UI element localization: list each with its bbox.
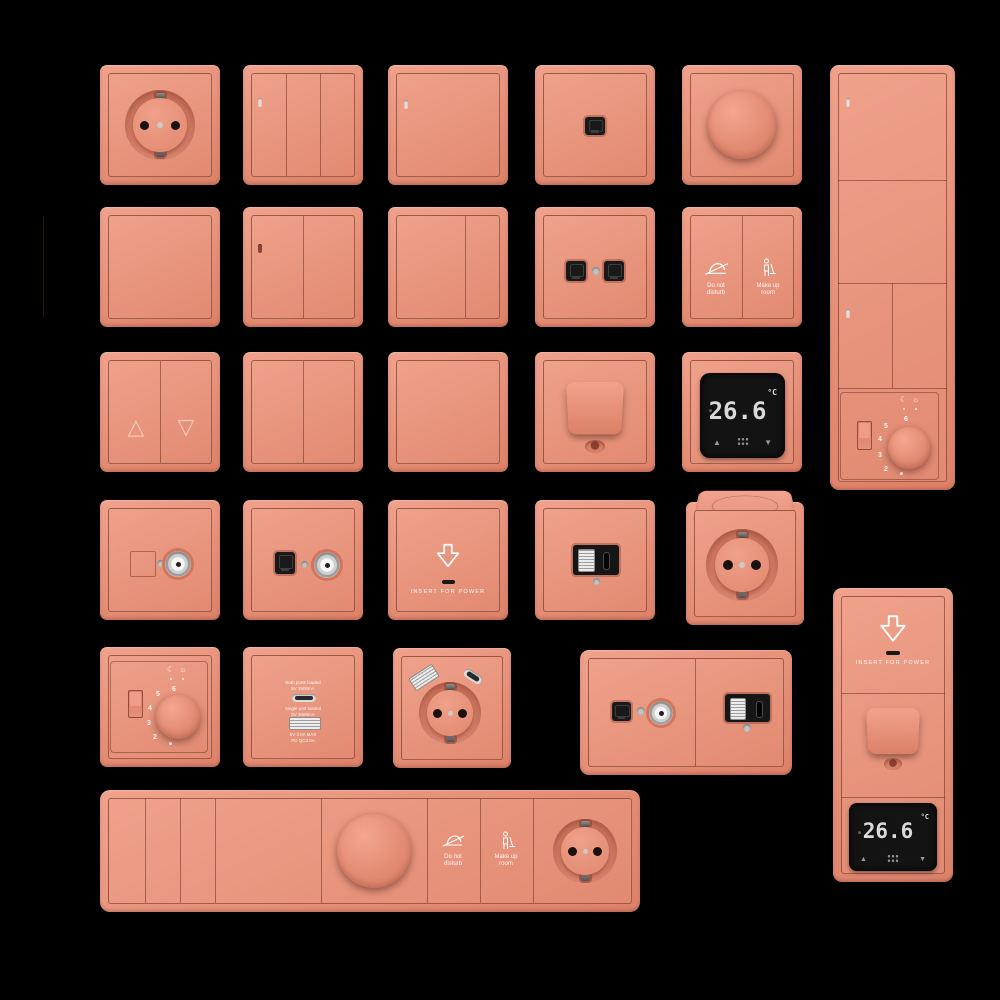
status-dot	[592, 267, 600, 275]
temp-down-button[interactable]: ▼	[919, 856, 926, 863]
dial-number: 3	[147, 720, 151, 727]
data-outlet-single	[535, 65, 655, 185]
center-screw	[739, 562, 745, 568]
earth-clip-icon	[446, 736, 455, 742]
usb-c-port[interactable]	[756, 701, 763, 718]
usb-outlet	[535, 500, 655, 620]
multi-panel-bottom: INSERT FOR POWER 26.6 °C ▲ ▼	[833, 588, 953, 882]
earth-clip-icon	[738, 592, 747, 598]
usb-charger-label-mid: Single port loaded5V 3000mA	[253, 706, 353, 717]
rotary-dimmer	[682, 65, 802, 185]
led-indicator	[258, 98, 262, 107]
data-port[interactable]	[566, 261, 586, 281]
socket-face[interactable]	[133, 98, 187, 152]
marker-dot	[903, 408, 905, 410]
thermostat-knob[interactable]	[888, 427, 930, 469]
divider	[215, 799, 216, 903]
insert-card-arrow-icon	[876, 614, 910, 644]
temp-up-button[interactable]: ▲	[860, 856, 867, 863]
usb-c-port[interactable]	[292, 694, 316, 702]
socket-recess[interactable]	[553, 819, 617, 883]
toggle-lever[interactable]	[866, 708, 920, 754]
blinds-down-icon: ▽	[170, 414, 202, 440]
socket-face[interactable]	[715, 538, 769, 592]
dial-number: 2	[153, 734, 157, 741]
toggle-lever-switch	[535, 352, 655, 472]
make-up-room-label: Make uproom	[480, 854, 532, 868]
thermostat-knob[interactable]	[156, 695, 200, 739]
led-indicator	[404, 100, 408, 109]
dial-number: 6	[904, 416, 908, 423]
lever-pivot	[884, 758, 902, 770]
rocker-area[interactable]	[396, 360, 500, 464]
divider	[838, 180, 947, 181]
dial-number: 3	[878, 452, 882, 459]
insert-card-arrow-icon	[433, 542, 463, 570]
switch-3-gang	[388, 207, 508, 327]
pin-hole	[723, 560, 733, 570]
make-up-room-label: Make uproom	[744, 283, 792, 297]
blinds-switch: △ ▽	[100, 352, 220, 472]
earth-clip-icon	[581, 875, 590, 881]
socket-recess[interactable]	[419, 682, 481, 744]
temperature-unit: °C	[921, 813, 929, 821]
dial-number: 6	[172, 686, 176, 693]
coax-connector[interactable]	[649, 701, 673, 725]
usb-c-port[interactable]	[603, 552, 610, 570]
divider	[841, 693, 945, 694]
temp-up-button[interactable]: ▲	[713, 438, 721, 447]
plate-frame	[251, 508, 355, 612]
card-slot[interactable]	[442, 580, 455, 584]
center-screw	[448, 711, 453, 716]
switch-2-gang	[243, 352, 363, 472]
make-up-room-icon	[499, 830, 515, 852]
divider	[427, 799, 428, 903]
mode-slider[interactable]	[857, 421, 872, 450]
mode-slider[interactable]	[128, 690, 143, 718]
usb-charger-label-top: Both ports loaded5V 1500mA	[253, 680, 353, 691]
center-screw	[157, 122, 163, 128]
rocker-area[interactable]	[108, 215, 212, 319]
usb-a-port[interactable]	[289, 717, 321, 730]
switch-1-gang-plain	[100, 207, 220, 327]
dimmer-knob[interactable]	[337, 814, 411, 888]
schuko-socket	[100, 65, 220, 185]
divider	[838, 388, 947, 389]
divider	[742, 216, 743, 318]
do-not-disturb-label: Do notdisturb	[692, 283, 740, 297]
divider	[533, 799, 534, 903]
temperature-value: 26.6	[700, 397, 775, 425]
status-dot	[743, 724, 751, 732]
sun-icon: ☼	[912, 395, 919, 404]
marker-dot	[182, 678, 184, 680]
switch-1-gang	[388, 352, 508, 472]
multi-panel-top: ☾ ☼ 6 5 4 3 2	[830, 65, 955, 490]
switch-1-gang	[388, 65, 508, 185]
divider	[145, 799, 146, 903]
thermostat-screen[interactable]: 26.6 °C ▲ ▼	[849, 803, 937, 871]
thermostat-dial: ☾ ☼ 6 5 4 3 2	[100, 647, 220, 767]
insert-for-power-label: INSERT FOR POWER	[394, 589, 502, 595]
menu-dots-icon[interactable]	[887, 854, 899, 863]
pin-hole	[458, 709, 467, 718]
temp-down-button[interactable]: ▼	[764, 438, 772, 447]
toggle-lever[interactable]	[566, 382, 624, 434]
center-screw	[583, 849, 588, 854]
coax-connector[interactable]	[314, 552, 340, 578]
sun-icon: ☼	[179, 665, 186, 674]
product-collage: ☾ ☼ 6 5 4 3 2	[0, 0, 1000, 1000]
blinds-up-icon: △	[120, 414, 152, 440]
divider	[43, 216, 44, 318]
usb-charger: Both ports loaded5V 1500mA Single port l…	[243, 647, 363, 767]
tv-data-outlet	[243, 500, 363, 620]
do-not-disturb-label: Do notdisturb	[427, 854, 479, 868]
rocker-area[interactable]	[396, 73, 500, 177]
do-not-disturb-icon	[702, 259, 730, 279]
led-indicator	[846, 309, 850, 318]
schuko-socket-usb	[393, 648, 511, 768]
multi-function-panel: Do notdisturb Make uproom	[100, 790, 640, 912]
socket-face[interactable]	[427, 690, 473, 736]
divider	[892, 283, 893, 388]
lever-pivot	[585, 440, 605, 453]
socket-recess[interactable]	[125, 90, 195, 160]
usb-module	[573, 545, 619, 575]
marker-dot	[900, 472, 903, 475]
marker-dot	[915, 408, 917, 410]
dial-number: 2	[884, 466, 888, 473]
rocker-area[interactable]	[396, 215, 500, 319]
thermostat-screen[interactable]: 26.6 °C ▲ ▼	[700, 373, 785, 458]
dial-number: 4	[878, 436, 882, 443]
usb-a-port[interactable]	[578, 549, 595, 572]
schuko-socket-with-lid	[686, 502, 804, 625]
socket-recess[interactable]	[706, 529, 778, 601]
pin-hole	[593, 847, 602, 856]
pin-hole	[171, 121, 180, 130]
divider	[303, 361, 304, 463]
switch-3-gang	[243, 65, 363, 185]
divider	[160, 361, 161, 463]
led-indicator	[258, 244, 262, 253]
do-not-disturb-icon	[440, 832, 466, 850]
marker-dot	[170, 678, 172, 680]
rocker-area[interactable]	[251, 73, 355, 177]
divider	[465, 216, 466, 318]
digital-thermostat: 26.6 °C ▲ ▼	[682, 352, 802, 472]
dial-number: 4	[148, 705, 152, 712]
insert-for-power-label: INSERT FOR POWER	[839, 660, 947, 666]
moon-icon: ☾	[167, 665, 174, 674]
key-card-holder: INSERT FOR POWER	[388, 500, 508, 620]
moon-icon: ☾	[900, 395, 907, 404]
pin-hole	[433, 709, 442, 718]
blank-module	[130, 551, 156, 577]
temperature-unit: °C	[767, 388, 777, 397]
divider	[286, 74, 287, 176]
divider	[695, 659, 696, 766]
room-service-switch: Do notdisturb Make uproom	[682, 207, 802, 327]
divider	[180, 799, 181, 903]
divider	[303, 216, 304, 318]
socket-face[interactable]	[561, 827, 609, 875]
usb-charger-label-bottom: 5V 3.0A MAXPD QC3.0A	[253, 732, 353, 743]
dial-number: 5	[884, 423, 888, 430]
pin-hole	[751, 560, 761, 570]
divider	[841, 797, 945, 798]
temperature-value: 26.6	[849, 819, 927, 843]
marker-dot	[169, 742, 172, 745]
status-dot	[301, 561, 308, 568]
pin-hole	[568, 847, 577, 856]
menu-dots-icon[interactable]	[737, 437, 749, 446]
divider	[480, 799, 481, 903]
data-outlet-double	[535, 207, 655, 327]
make-up-room-icon	[760, 257, 776, 279]
usb-module	[725, 694, 770, 722]
status-dot	[157, 560, 164, 567]
led-indicator	[846, 98, 850, 107]
divider	[320, 74, 321, 176]
switch-2-gang	[243, 207, 363, 327]
status-dot	[593, 578, 600, 585]
data-port[interactable]	[604, 261, 624, 281]
dimmer-knob[interactable]	[708, 91, 776, 159]
divider	[321, 799, 322, 903]
data-port[interactable]	[585, 117, 605, 135]
dial-number: 5	[156, 691, 160, 698]
data-port[interactable]	[612, 702, 631, 721]
pin-hole	[140, 121, 149, 130]
data-port[interactable]	[275, 552, 295, 574]
tv-coax-outlet	[100, 500, 220, 620]
coax-connector[interactable]	[165, 551, 191, 577]
tv-data-usb-combo	[580, 650, 792, 775]
usb-a-port[interactable]	[730, 698, 746, 720]
status-dot	[637, 707, 645, 715]
card-slot[interactable]	[886, 651, 900, 655]
